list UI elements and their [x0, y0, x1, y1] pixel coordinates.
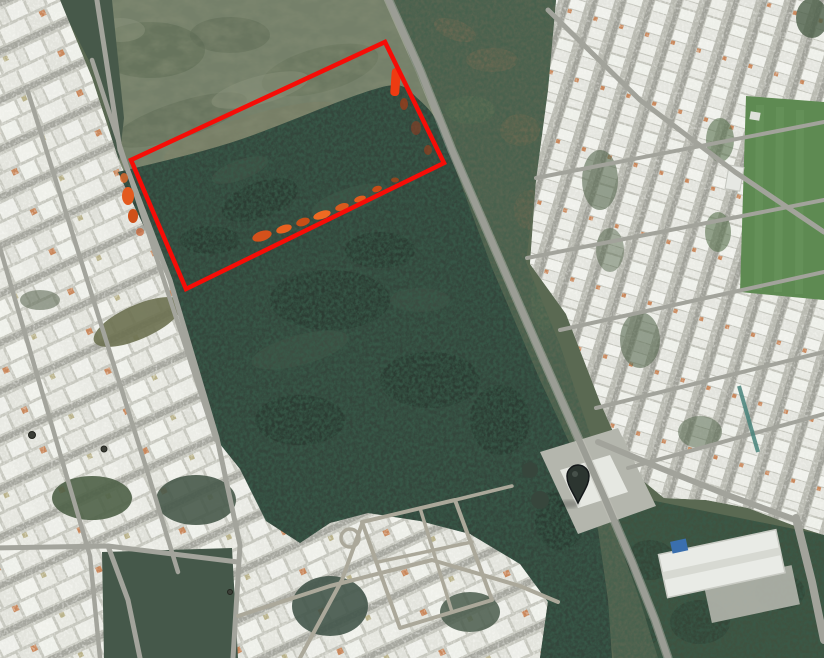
poi-dot	[101, 446, 107, 452]
satellite-map	[0, 0, 824, 658]
pin-shadow	[559, 500, 579, 508]
pin-highlight	[572, 471, 578, 477]
poi-dot	[228, 590, 233, 595]
satellite-map-canvas[interactable]	[0, 0, 824, 658]
poi-dot	[29, 432, 36, 439]
bottom-park	[102, 548, 238, 658]
